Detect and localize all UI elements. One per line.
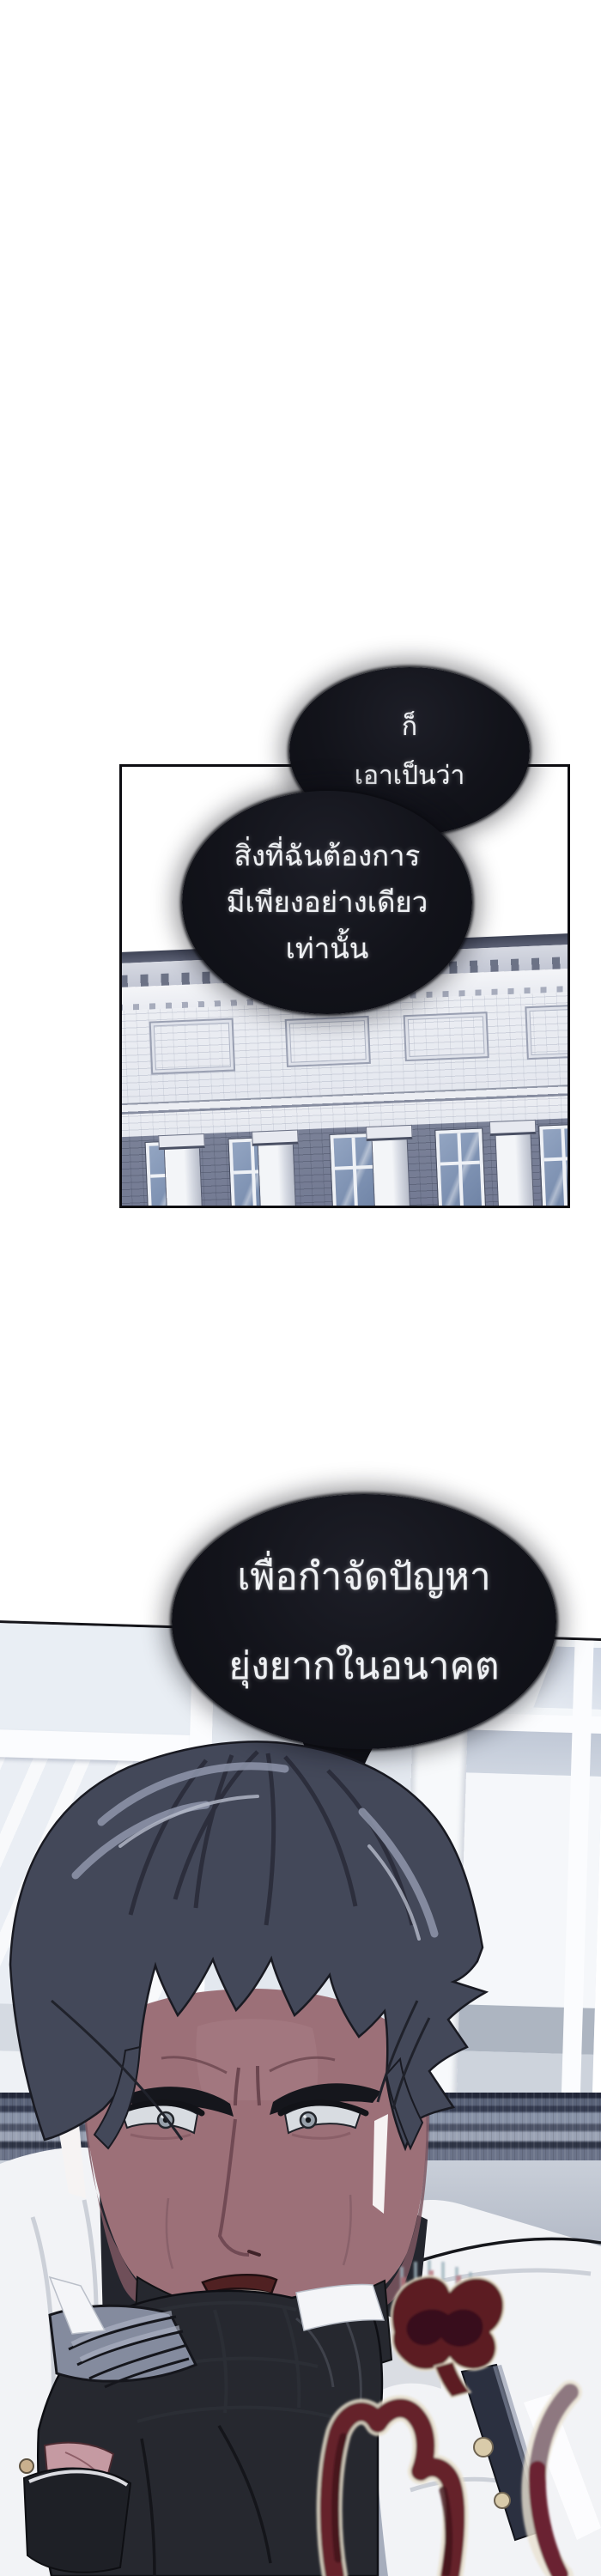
column — [372, 1135, 410, 1208]
comic-page: ก็ เอาเป็นว่า สิ่งที่ฉันต้องการ มีเพียงอ… — [0, 0, 601, 2576]
window — [539, 1124, 570, 1208]
dialogue-line: มีเพียงอย่างเดียว — [227, 879, 428, 926]
wall-panel-frame — [404, 1012, 489, 1061]
wall-panel-frame — [285, 1016, 371, 1067]
dialogue-line: เอาเป็นว่า — [355, 751, 465, 800]
wall-panel-frame — [525, 1003, 570, 1060]
dialogue-line: สิ่งที่ฉันต้องการ — [234, 833, 421, 879]
column — [495, 1130, 534, 1208]
dialogue-line: ก็ — [402, 702, 417, 751]
column — [165, 1144, 203, 1208]
speech-bubble-middle: สิ่งที่ฉันต้องการ มีเพียงอย่างเดียว เท่า… — [182, 791, 472, 1014]
window — [435, 1129, 486, 1208]
column — [258, 1140, 297, 1208]
sfx-label: ตึง — [0, 0, 1, 1]
dialogue-line: เท่านั้น — [286, 926, 369, 972]
character-illustration — [0, 1614, 601, 2576]
dialogue-line: เพื่อกำจัดปัญหา — [237, 1533, 490, 1622]
wall-panel-frame — [149, 1018, 236, 1075]
dialogue-line: ยุ่งยากในอนาคต — [228, 1622, 499, 1711]
speech-bubble-large: เพื่อกำจัดปัญหา ยุ่งยากในอนาคต — [172, 1494, 556, 1749]
